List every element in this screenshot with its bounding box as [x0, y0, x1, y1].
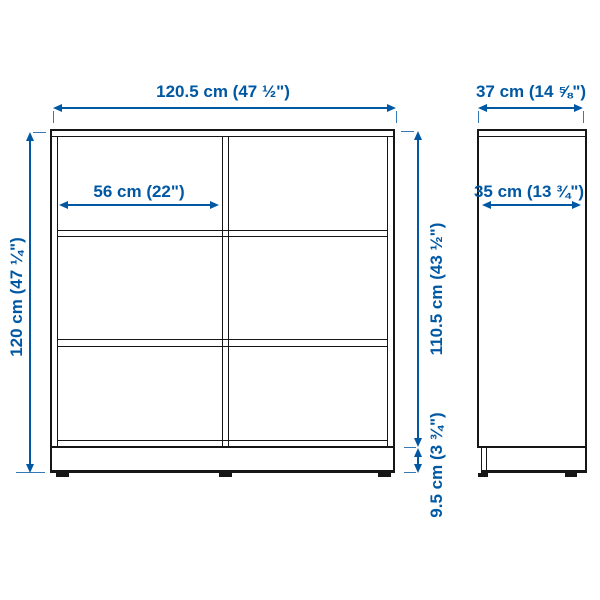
front-foot-right	[378, 473, 391, 477]
base-height-label: 9.5 cm (3 ¾")	[428, 365, 446, 565]
arrowhead-left-icon	[478, 104, 487, 112]
interior-height-label: 110.5 cm (43 ½")	[428, 189, 446, 389]
base-height-extension-bottom	[404, 472, 416, 473]
front-width-extension-left	[53, 111, 54, 123]
arrowhead-right-icon	[210, 201, 219, 209]
arrowhead-up-icon	[26, 132, 34, 141]
side-top-edge	[477, 129, 587, 131]
side-bottom-panel-line	[479, 446, 586, 448]
front-bottom-shelf-line	[57, 440, 388, 441]
arrowhead-left-icon	[482, 201, 491, 209]
front-height-label: 120 cm (47 ¼")	[8, 197, 26, 397]
arrowhead-right-icon	[387, 104, 396, 112]
arrowhead-down-icon	[414, 438, 422, 447]
front-height-extension-top	[33, 132, 46, 133]
front-foot-center	[219, 473, 232, 477]
front-height-dimension-line	[29, 136, 31, 470]
side-back-edge	[585, 129, 587, 473]
front-width-dimension-line	[55, 107, 394, 109]
side-plinth-front-line-outer	[481, 448, 482, 471]
front-foot-left	[56, 473, 69, 477]
side-foot-front	[478, 473, 488, 477]
front-shelf2-top-line	[57, 339, 388, 340]
side-depth-extension-left	[478, 111, 479, 123]
front-width-extension-right	[396, 111, 397, 123]
side-depth-dimension-line	[480, 107, 581, 109]
compartment-width-dimension-line	[61, 204, 216, 206]
arrowhead-up-icon	[414, 448, 422, 457]
front-shelf2-bottom-line	[57, 346, 388, 347]
side-depth-extension-right	[583, 111, 584, 123]
front-width-label: 120.5 cm (47 ½")	[123, 83, 323, 101]
front-shelf1-top-line	[57, 230, 388, 231]
side-depth-label: 37 cm (14 ⅝")	[431, 83, 600, 101]
interior-height-extension-top	[401, 131, 414, 132]
dimension-diagram: 120.5 cm (47 ½") 37 cm (14 ⅝") 120 cm (4…	[0, 0, 600, 600]
interior-depth-label: 35 cm (13 ¾")	[429, 183, 600, 201]
front-top-edge	[50, 129, 395, 131]
front-height-extension-bottom	[16, 472, 45, 473]
compartment-width-label: 56 cm (22")	[39, 183, 239, 201]
front-shelf1-bottom-line	[57, 236, 388, 237]
front-left-edge	[50, 129, 52, 449]
arrowhead-right-icon	[574, 104, 583, 112]
side-top-inner-line	[478, 136, 586, 137]
arrowhead-right-icon	[572, 201, 581, 209]
side-plinth-front-line-inner	[486, 448, 487, 471]
interior-depth-dimension-line	[484, 204, 579, 206]
front-right-edge	[393, 129, 395, 449]
arrowhead-left-icon	[53, 104, 62, 112]
arrowhead-up-icon	[414, 131, 422, 140]
side-foot-back	[565, 473, 577, 477]
front-bottom-panel-line	[52, 446, 393, 448]
interior-height-dimension-line	[417, 135, 419, 444]
side-front-edge	[477, 129, 479, 448]
front-right-inner-line	[387, 137, 388, 446]
arrowhead-left-icon	[59, 201, 68, 209]
